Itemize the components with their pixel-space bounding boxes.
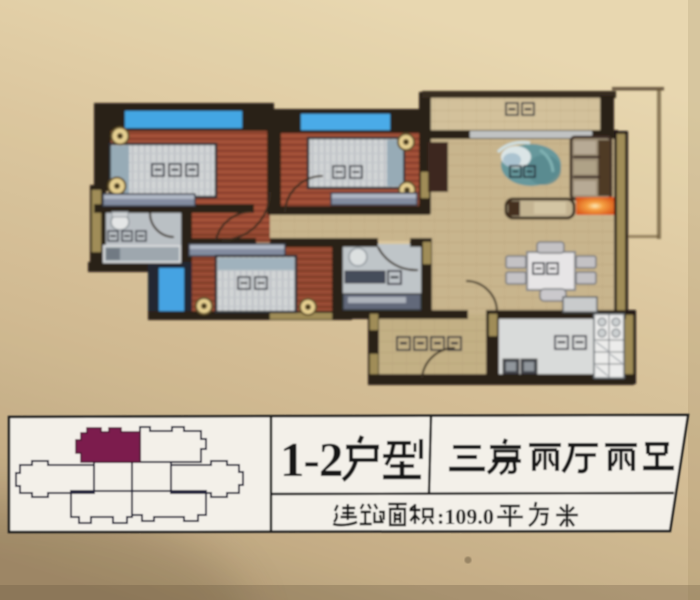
svg-text::109.0: :109.0	[437, 504, 494, 529]
svg-text:1-2: 1-2	[280, 432, 342, 487]
